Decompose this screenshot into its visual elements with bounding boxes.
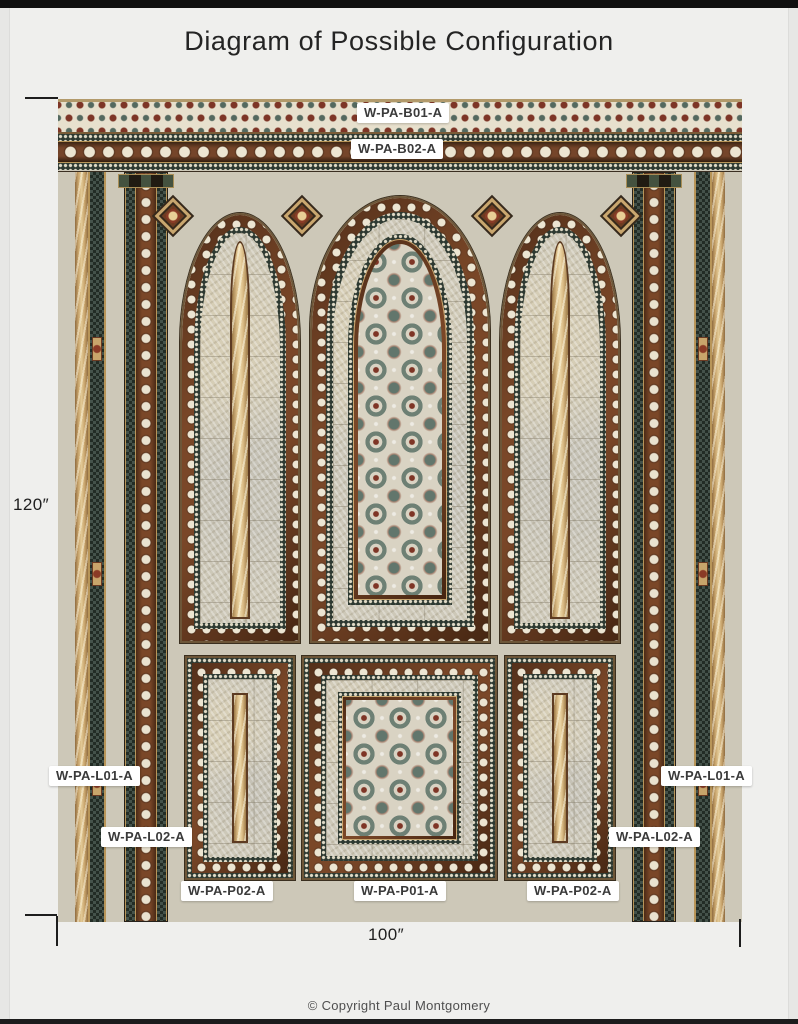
arch-ring-dots (514, 227, 606, 629)
arch-field (520, 233, 600, 623)
arch-ring-pearls (502, 215, 618, 641)
page-edge-right (788, 8, 798, 1019)
gold-strip-left (75, 172, 88, 922)
panel-ring-pearls (512, 663, 608, 873)
star-mosaic-lower (346, 700, 453, 836)
arch-niche-left (230, 241, 250, 619)
panel-ring-dots (507, 658, 613, 878)
top-frame-bar (0, 0, 798, 8)
panel-field (208, 679, 272, 857)
checker-strip (125, 173, 136, 921)
panel-ring-pearls (192, 663, 288, 873)
lower-panel-right (505, 656, 615, 880)
dimension-tick-bottom-left (25, 914, 57, 916)
diamond-core (165, 208, 182, 225)
pearl-strip (136, 173, 156, 921)
lower-panel-left (185, 656, 295, 880)
tag-w-pa-l01-a-left: W-PA-L01-A (49, 766, 140, 786)
dimension-tick-top-left (25, 97, 58, 99)
diamond-core (294, 208, 311, 225)
panel-ring-dots (203, 674, 277, 862)
medallion-icon (92, 562, 102, 586)
width-dimension-label: 100″ (340, 925, 432, 945)
tag-w-pa-l02-a-left: W-PA-L02-A (101, 827, 192, 847)
diamond-ornament-icon (284, 198, 321, 235)
arch-panel-center (310, 196, 490, 643)
arch-panel-left (180, 213, 300, 643)
star-mosaic-center (358, 244, 442, 595)
arch-ring-pearls (312, 198, 488, 641)
tag-w-pa-b02-a: W-PA-B02-A (351, 139, 443, 159)
arch-field (200, 233, 280, 623)
panel-ring-tile (326, 680, 473, 856)
arch-ring-pearls (182, 215, 298, 641)
arch-ring-dots (326, 212, 474, 627)
copyright-text: © Copyright Paul Montgomery (0, 998, 798, 1013)
arch-ring-dots (348, 234, 452, 605)
panel-ring-frame (342, 696, 457, 840)
arch-niche-right (550, 241, 570, 619)
lower-niche-right (552, 693, 568, 843)
panel-ring-pearls (309, 663, 490, 873)
panel-artwork (58, 99, 742, 922)
dimension-tick-width-right (739, 919, 741, 947)
tag-w-pa-l02-a-right: W-PA-L02-A (609, 827, 700, 847)
medallion-icon (698, 337, 708, 361)
pilaster-left-inner (124, 172, 168, 922)
diamond-core (484, 208, 501, 225)
capital-left (118, 174, 174, 188)
arch-ring-frame (353, 239, 447, 600)
panel-ring-dots (304, 658, 495, 878)
checker-strip (633, 173, 644, 921)
tag-w-pa-p02-a-left: W-PA-P02-A (181, 881, 273, 901)
panel-field (528, 679, 592, 857)
capital-right (626, 174, 682, 188)
diamond-ornament-icon (474, 198, 511, 235)
lower-niche-left (232, 693, 248, 843)
panel-ring-dots (338, 692, 461, 844)
tag-w-pa-l01-a-right: W-PA-L01-A (661, 766, 752, 786)
arch-ring-tile (333, 219, 467, 620)
checker-strip (156, 173, 167, 921)
page-title: Diagram of Possible Configuration (0, 26, 798, 57)
medallion-icon (92, 337, 102, 361)
panel-ring-dots (523, 674, 597, 862)
checker-strip (664, 173, 675, 921)
panel-ring-dots (187, 658, 293, 878)
bottom-frame-bar (0, 1019, 798, 1024)
lower-panel-center (302, 656, 497, 880)
medallion-icon (698, 562, 708, 586)
diagram-page: Diagram of Possible Configuration (0, 0, 798, 1024)
band-dot-row (58, 163, 742, 170)
gold-strip-right (712, 172, 725, 922)
tag-w-pa-p02-a-right: W-PA-P02-A (527, 881, 619, 901)
pilaster-right-outer (694, 172, 712, 922)
pilaster-right-inner (632, 172, 676, 922)
panel-ring-dots (321, 675, 478, 861)
height-dimension-label: 120″ (6, 495, 56, 515)
pilaster-left-outer (88, 172, 106, 922)
diamond-core (613, 208, 630, 225)
dimension-tick-width-left (56, 916, 58, 946)
arch-panel-right (500, 213, 620, 643)
pearl-strip (644, 173, 664, 921)
tag-w-pa-p01-a: W-PA-P01-A (354, 881, 446, 901)
arch-ring-dots (194, 227, 286, 629)
tag-w-pa-b01-a: W-PA-B01-A (357, 103, 449, 123)
